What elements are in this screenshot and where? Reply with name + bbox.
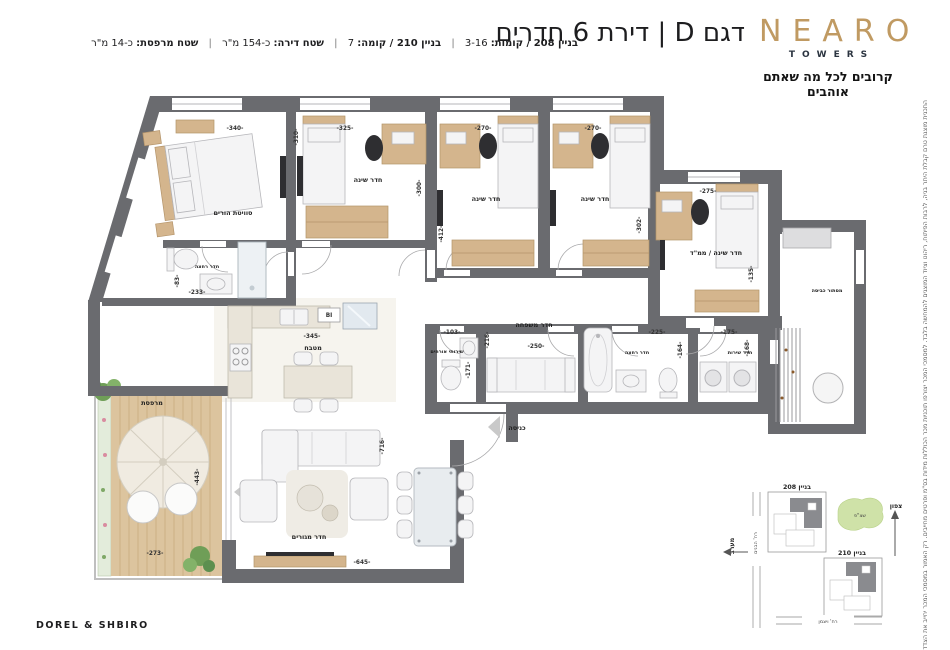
family-room-sofa xyxy=(487,358,575,392)
boiler xyxy=(813,373,843,403)
svg-text:-168-: -168- xyxy=(745,339,751,357)
street-vertical: רח' הבנים xyxy=(750,492,763,628)
svg-text:-83-: -83- xyxy=(175,274,181,287)
floorplan-drawing: סוויטת הורים חדר שינה חדר שינה חדר שינה … xyxy=(0,0,950,650)
label-living-room: חדר מגורים xyxy=(292,533,327,541)
balcony-chair xyxy=(127,491,159,523)
armchair xyxy=(350,478,388,520)
tv xyxy=(280,156,286,198)
svg-text:-340-: -340- xyxy=(227,126,245,132)
svg-text:-302-: -302- xyxy=(637,216,643,234)
label-bedroom-mamad: חדר שינה / ממ"ד xyxy=(690,249,742,257)
sitemap-building-210-label: בניין 210 xyxy=(838,550,866,557)
ac-unit xyxy=(783,228,831,248)
svg-text:-645-: -645- xyxy=(354,560,372,566)
street-horizontal-label: רח' ויצמן xyxy=(818,619,837,625)
svg-text:-135-: -135- xyxy=(749,265,755,283)
svg-text:-412-: -412- xyxy=(439,225,445,243)
sitemap-building-208 xyxy=(768,492,826,552)
svg-text:-345-: -345- xyxy=(304,334,322,340)
label-bedroom-3: חדר שינה xyxy=(581,195,610,203)
site-map: בניין 208 בניין 210 שצ"פ צפון xyxy=(723,484,902,628)
street-vertical-label: רח' הבנים xyxy=(753,532,759,554)
north-label: צפון xyxy=(890,503,903,510)
sitemap-green-label: שצ"פ xyxy=(854,513,866,519)
sitemap-building-210 xyxy=(824,558,882,616)
label-laundry-mistor: מסתור כביסה xyxy=(811,288,842,294)
armchair xyxy=(240,480,277,522)
floorplan-sheet: NEARO TOWERS קרובים לכל מה שאתם אוהבים ד… xyxy=(0,0,950,650)
label-built-in: BI xyxy=(326,313,333,319)
svg-text:-225-: -225- xyxy=(649,330,667,336)
label-bathroom: חדר רחצה xyxy=(625,350,649,356)
svg-text:-250-: -250- xyxy=(528,344,546,350)
svg-text:-164-: -164- xyxy=(678,341,684,359)
sitemap-building-208-label: בניין 208 xyxy=(783,484,811,491)
svg-text:-216-: -216- xyxy=(485,331,491,349)
tv-console xyxy=(254,556,346,567)
svg-text:-270-: -270- xyxy=(585,126,603,132)
svg-text:-325-: -325- xyxy=(337,126,355,132)
planter-strip xyxy=(98,396,111,576)
svg-text:-300-: -300- xyxy=(417,179,423,197)
svg-text:-270-: -270- xyxy=(475,126,493,132)
label-guest-wc: שירותי אורחים xyxy=(430,349,464,355)
tv xyxy=(266,552,334,556)
label-bedroom-1: חדר שינה xyxy=(354,176,383,184)
balcony xyxy=(89,379,244,580)
svg-text:-716-: -716- xyxy=(380,437,386,455)
kitchen-island xyxy=(284,366,352,398)
label-family-room: חדר משפחה xyxy=(515,321,552,329)
balcony-chair xyxy=(165,483,197,515)
label-kitchen: מטבח xyxy=(304,344,322,352)
svg-text:-273-: -273- xyxy=(147,551,165,557)
master-dresser xyxy=(176,120,214,133)
svg-text:-310-: -310- xyxy=(294,128,300,146)
svg-text:-275-: -275- xyxy=(700,189,718,195)
label-bedroom-2: חדר שינה xyxy=(472,195,501,203)
label-master-bath: חדר רחצה xyxy=(195,264,219,270)
svg-text:-233-: -233- xyxy=(189,290,207,296)
label-balcony: מרפסת xyxy=(141,399,163,407)
svg-text:-171-: -171- xyxy=(466,361,472,379)
label-entry: כניסה xyxy=(508,424,526,432)
svg-text:-175-: -175- xyxy=(721,330,739,336)
svg-text:-443-: -443- xyxy=(195,468,201,486)
dining-set xyxy=(397,468,473,546)
cooktop xyxy=(230,344,251,371)
svg-text:-103-: -103- xyxy=(444,330,462,336)
north-arrow xyxy=(891,510,899,556)
label-master-suite: סוויטת הורים xyxy=(214,209,254,217)
street-horizontal: רח' ויצמן xyxy=(776,615,882,625)
